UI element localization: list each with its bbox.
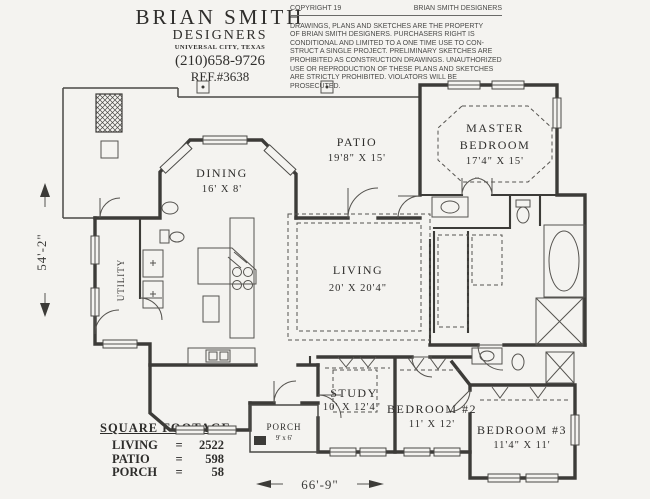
master-toilet [517, 207, 529, 223]
master-vanity [432, 197, 468, 217]
porch-label: PORCH [266, 422, 301, 432]
powder-sink [162, 202, 178, 214]
hall-bath-toilet [512, 354, 524, 370]
dimension-arrows [40, 183, 384, 488]
kitchen-island [198, 248, 256, 284]
living-dims: 20' X 20'4" [329, 283, 387, 294]
master-bedroom-dims: 17'4" X 15' [466, 156, 524, 167]
hall-bath-vanity [472, 348, 502, 364]
bedroom2-label: BEDROOM #2 [387, 402, 477, 416]
bedroom2-dims: 11' X 12' [409, 419, 455, 430]
study-label: STUDY [330, 386, 378, 400]
living-label: LIVING [333, 263, 383, 277]
patio-dims: 19'8" X 15' [328, 153, 386, 164]
master-bedroom-label: MASTER [466, 121, 524, 135]
bedroom3-dims: 11'4" X 11' [493, 440, 550, 451]
left-dimension: 54'-2" [34, 233, 49, 270]
svg-text:BEDROOM: BEDROOM [460, 138, 531, 152]
study-dims: 10' X 12'4" [323, 402, 381, 413]
powder-toilet [170, 232, 184, 242]
dining-label: DINING [196, 166, 248, 180]
bedroom3-label: BEDROOM #3 [477, 423, 567, 437]
patio-columns [197, 81, 333, 93]
interior-walls [140, 195, 557, 365]
bottom-dimension: 66'-9" [301, 477, 338, 492]
porch-dims: 9' x 6' [276, 434, 293, 442]
dining-dims: 16' X 8' [202, 184, 242, 195]
closets [325, 235, 568, 400]
floor-plan-drawing: PATIO 19'8" X 15' MASTER BEDROOM 17'4" X… [0, 0, 650, 499]
utility-label: UTILITY [116, 259, 126, 302]
floor-plan-sheet: { "header": { "studio_line1": "BRIAN SMI… [0, 0, 650, 499]
outdoor-fireplace [96, 94, 122, 132]
patio-label: PATIO [337, 135, 377, 149]
living-tray-ceiling [288, 214, 430, 340]
kitchen-counter [230, 218, 254, 338]
master-tub [549, 231, 579, 291]
room-labels: PATIO 19'8" X 15' MASTER BEDROOM 17'4" X… [116, 121, 567, 451]
